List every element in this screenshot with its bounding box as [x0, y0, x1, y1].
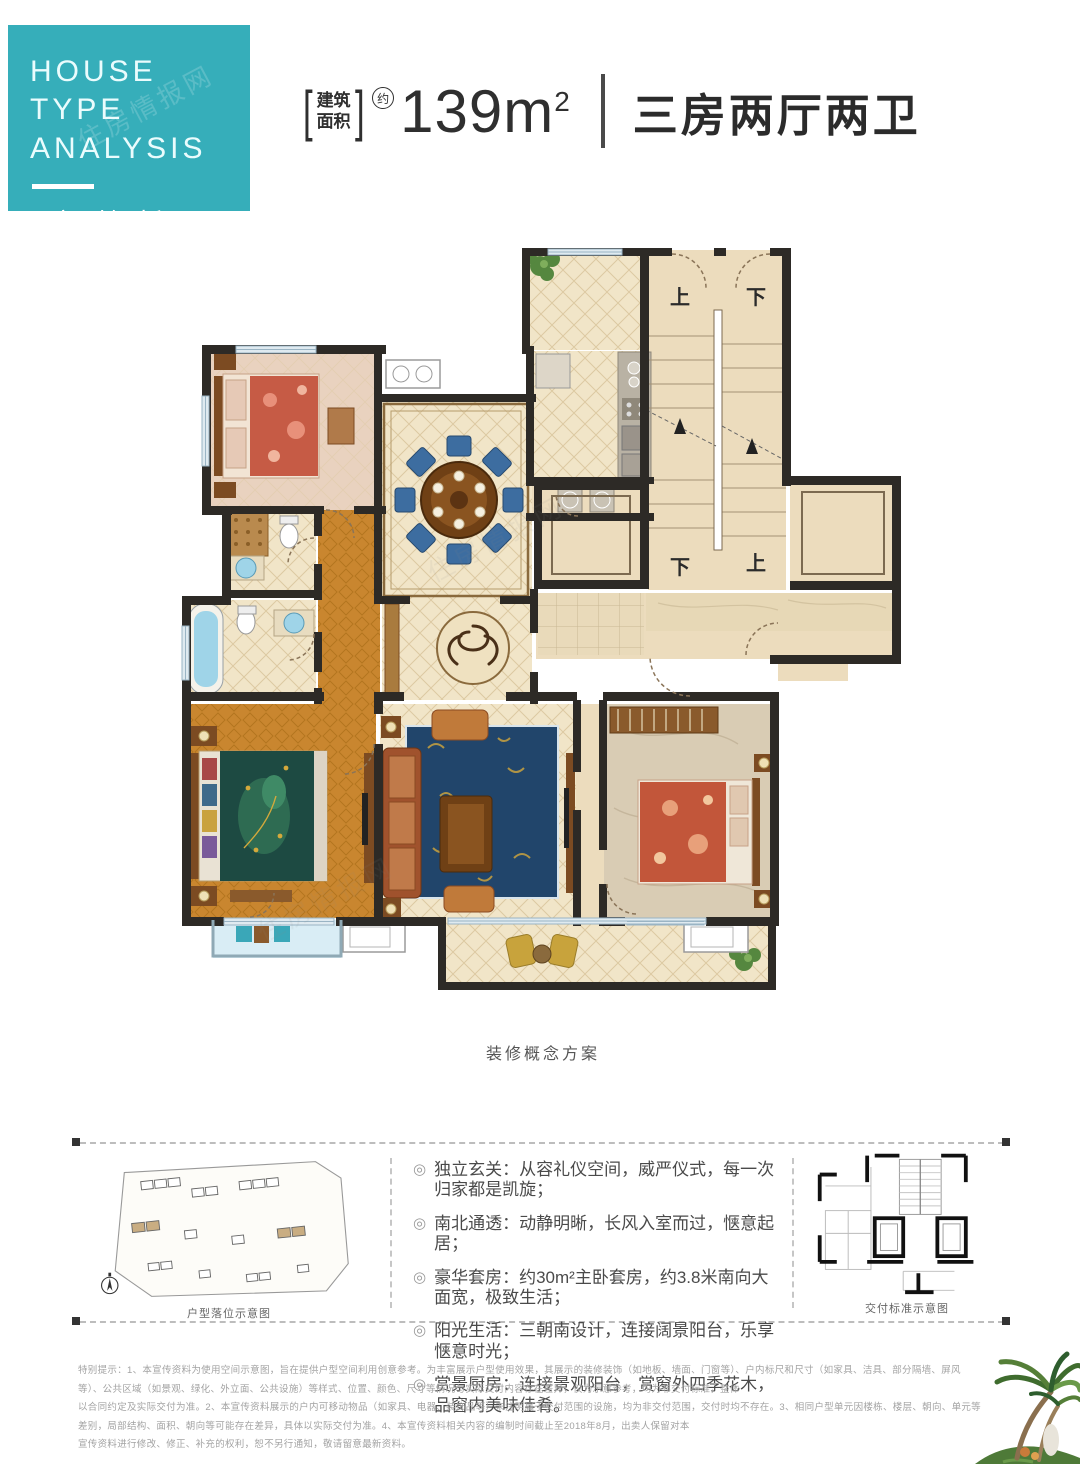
area-superscript: 2 [554, 86, 571, 117]
stair-label-down-top: 下 [746, 287, 766, 309]
features-top-border [80, 1142, 1004, 1144]
bullet-icon: ◎ [413, 1161, 426, 1179]
disclaimer-line: 宣传资料进行修改、修正、补充的权利，恕不另行通知，敬请留意最新资料。 [78, 1436, 983, 1455]
bracket-close: ] [355, 86, 365, 136]
banner-title-line1: HOUSE TYPE [30, 53, 250, 130]
stair-label-up-bottom: 上 [746, 552, 766, 575]
corner-mark [1002, 1317, 1010, 1325]
area-bracket-top: 建筑 [317, 90, 351, 111]
feature-text: 阳光生活：三朝南设计，连接阔景阳台，乐享惬意时光； [434, 1321, 785, 1362]
feature-text: 豪华套房：约30m²主卧套房，约3.8米南向大面宽，极致生活； [434, 1268, 785, 1309]
area-number: 139m [400, 78, 554, 145]
feature-item: ◎豪华套房：约30m²主卧套房，约3.8米南向大面宽，极致生活； [413, 1268, 785, 1309]
area-bracket-label: 建筑 面积 [317, 90, 351, 133]
feature-text: 独立玄关：从容礼仪空间，威严仪式，每一次归家都是凯旋； [434, 1160, 785, 1201]
area-value: 139m2 [400, 77, 571, 146]
corner-mark [72, 1138, 80, 1146]
floorplan-rendering: 上 下 下 上 [178, 248, 908, 1038]
siteplan-caption: 户型落位示意图 [95, 1305, 363, 1321]
header-area-line: [ 建筑 面积 ] 约 139m2 三房两厅两卫 [300, 68, 921, 154]
banner-title-line2: ANALYSIS [30, 130, 250, 168]
area-bracket-bottom: 面积 [317, 111, 351, 132]
disclaimer-line: 特别提示：1、本宣传资料为使用空间示意图，旨在提供户型空间利用创意参考。为丰富展… [78, 1362, 983, 1399]
feature-item: ◎独立玄关：从容礼仪空间，威严仪式，每一次归家都是凯旋； [413, 1160, 785, 1201]
features-divider-right [792, 1158, 794, 1308]
disclaimer: 特别提示：1、本宣传资料为使用空间示意图，旨在提供户型空间利用创意参考。为丰富展… [78, 1362, 983, 1455]
bullet-icon: ◎ [413, 1269, 426, 1287]
corner-mark [72, 1317, 80, 1325]
delivery-caption: 交付标准示意图 [795, 1300, 1019, 1316]
corner-mark [1002, 1138, 1010, 1146]
stair-label-down-bottom: 下 [670, 557, 690, 579]
bullet-icon: ◎ [413, 1322, 426, 1340]
banner-divider [32, 184, 94, 189]
approx-badge: 约 [372, 87, 394, 109]
palm-tree-decoration [955, 1336, 1080, 1464]
features-divider-left [390, 1158, 392, 1308]
feature-text: 南北通透：动静明晰，长风入室而过，惬意起居； [434, 1214, 785, 1255]
feature-item: ◎阳光生活：三朝南设计，连接阔景阳台，乐享惬意时光； [413, 1321, 785, 1362]
house-type-banner: HOUSE TYPE ANALYSIS E户型解析 [8, 25, 250, 211]
site-location-diagram [95, 1158, 363, 1300]
elevator-right-floor [790, 480, 896, 586]
stair-label-up-top: 上 [670, 286, 690, 309]
banner-subtitle: E户型解析 [30, 202, 250, 241]
compass-icon [102, 1273, 118, 1294]
header-vertical-divider [601, 74, 605, 148]
house-type-analysis-page: HOUSE TYPE ANALYSIS E户型解析 [ 建筑 面积 ] 约 13… [0, 0, 1080, 1464]
bracket-open: [ [303, 86, 313, 136]
disclaimer-line: 以合同约定及实际交付为准。2、本宣传资料展示的户内可移动物品（如家具、电器、装饰… [78, 1399, 983, 1436]
rooms-text: 三房两厅两卫 [633, 79, 921, 144]
floorplan-caption: 装修概念方案 [178, 1040, 908, 1064]
delivery-standard-diagram [812, 1148, 1002, 1296]
feature-item: ◎南北通透：动静明晰，长风入室而过，惬意起居； [413, 1214, 785, 1255]
bullet-icon: ◎ [413, 1215, 426, 1233]
